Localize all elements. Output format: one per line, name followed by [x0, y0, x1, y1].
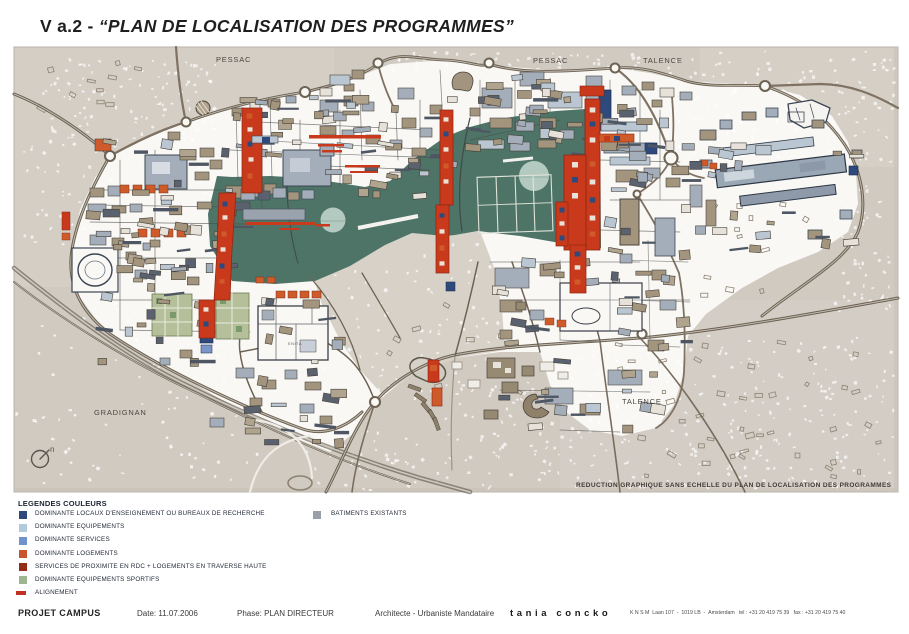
svg-text:TALENCE: TALENCE: [622, 397, 662, 406]
svg-text:PESSAC: PESSAC: [216, 55, 251, 64]
svg-text:REDUCTION GRAPHIQUE SANS ECHEL: REDUCTION GRAPHIQUE SANS ECHELLE DU PLAN…: [576, 482, 892, 489]
svg-text:TALENCE: TALENCE: [643, 56, 683, 65]
svg-text:PESSAC: PESSAC: [533, 56, 568, 65]
svg-text:ENITA: ENITA: [288, 341, 302, 346]
svg-text:n: n: [50, 445, 54, 454]
svg-text:GRADIGNAN: GRADIGNAN: [94, 408, 147, 417]
